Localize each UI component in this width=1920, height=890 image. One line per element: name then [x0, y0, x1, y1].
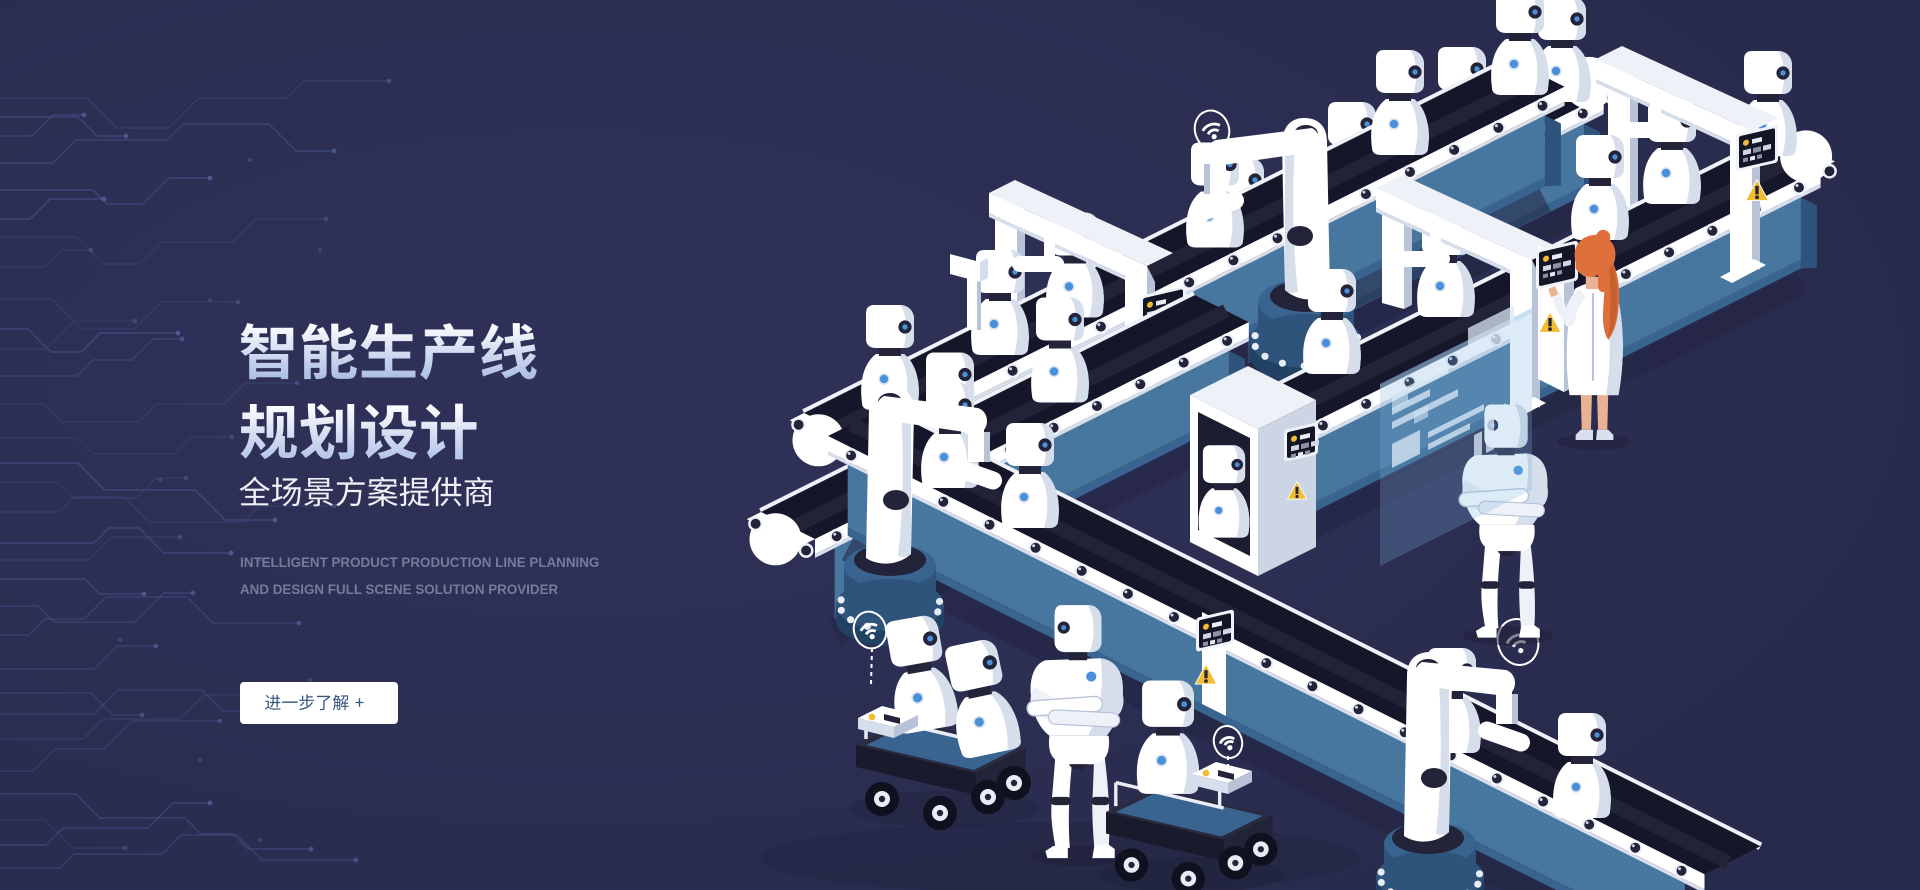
svg-text:AND DESIGN FULL SCENE SOLUTION: AND DESIGN FULL SCENE SOLUTION PROVIDER	[240, 582, 559, 597]
svg-text:INTELLIGENT PRODUCT PRODUCTION: INTELLIGENT PRODUCT PRODUCTION LINE PLAN…	[240, 555, 599, 570]
